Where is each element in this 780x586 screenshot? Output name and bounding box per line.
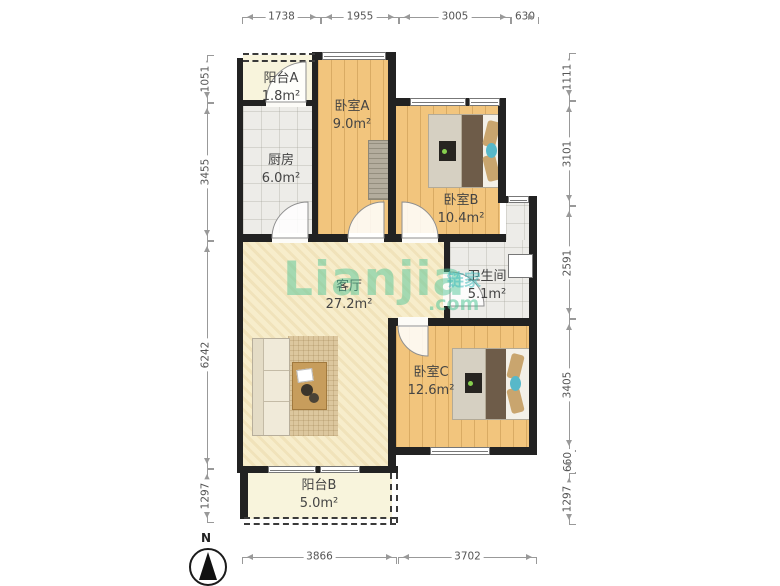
dimension-value: 3101 [563,137,575,170]
sofa-cushion-line [263,401,289,402]
floor-plan: 阳台A 1.8m² 厨房 6.0m² 卧室A 9.0m² 卧室B 10.4m² … [0,0,780,585]
dimension-top: 630 [511,17,539,24]
dimension-top: 1738 [242,17,321,24]
sofa-cushion-line [263,370,289,371]
dimension-right: 3101 [569,101,576,206]
dimension-value: 1297 [563,483,575,516]
room-name: 卧室A [333,98,372,116]
bed-b [428,114,505,188]
room-area: 5.0m² [300,495,339,513]
room-name: 阳台B [300,477,339,495]
balcony-b-dashed-edge [244,517,396,519]
dimension-right: 2591 [569,206,576,319]
dimension-value: 3702 [451,552,484,564]
bed-c-cushion [510,376,521,391]
bed-c-tv-light [468,381,473,386]
wall [529,196,537,455]
bathroom-floor-upper [506,202,530,242]
sofa [252,338,290,436]
bed-b-duvet [462,115,483,187]
bed-c [452,348,530,420]
window [508,196,529,203]
room-label-living-room: 客厅 27.2m² [326,278,373,313]
wall [312,52,318,242]
dimension-left: 1297 [207,469,214,523]
compass-icon [189,548,227,586]
window [320,466,360,473]
dimension-value: 3005 [439,12,472,24]
door-opening [443,272,451,306]
bed-c-duvet [486,349,506,419]
dimension-value: 1111 [563,61,575,94]
sofa-back [253,339,264,435]
dimension-value: 6242 [201,339,213,372]
table-card [296,368,314,383]
bed-b-tv-light [442,149,447,154]
wall [388,318,396,473]
window [469,98,500,106]
door-opening [272,233,308,243]
dimension-left: 6242 [207,241,214,469]
hallway-floor [390,240,446,320]
room-name: 厨房 [262,152,301,170]
dimension-right: 3405 [569,319,576,451]
compass-north-label: N [189,531,223,545]
washing-machine [508,254,533,278]
dimension-value: 630 [512,12,538,24]
room-label-bedroom-c: 卧室C 12.6m² [408,364,455,399]
door-opening [398,317,428,327]
room-area: 1.8m² [262,88,301,106]
room-area: 9.0m² [333,116,372,134]
room-name: 阳台A [262,70,301,88]
balcony-b-dashed-edge [390,473,392,523]
room-area: 5.1m² [467,286,506,304]
wall [498,98,506,203]
dimension-right: 1111 [569,53,576,101]
wall [237,466,398,473]
dimension-left: 1051 [207,55,214,103]
room-area: 12.6m² [408,382,455,400]
door-opening [402,233,438,243]
room-name: 卫生间 [467,268,506,286]
dimension-right: 1297 [569,473,576,525]
window [322,52,386,60]
dimension-bottom: 3866 [242,557,397,564]
dimension-top: 1955 [321,17,399,24]
room-label-bathroom: 卫生间 5.1m² [467,268,506,303]
coffee-table [292,362,327,410]
room-name: 客厅 [326,278,373,296]
window [410,98,466,106]
room-name: 卧室C [408,364,455,382]
dimension-value: 1738 [265,12,298,24]
room-label-bedroom-a: 卧室A 9.0m² [333,98,372,133]
balcony-b-dashed-edge [244,523,396,525]
dimension-value: 3455 [201,156,213,189]
table-bowl [309,393,319,403]
dimension-top: 3005 [399,17,511,24]
balcony-a-dashed-edge [243,60,315,62]
bed-b-cushion [486,143,497,158]
dimension-value: 2591 [563,246,575,279]
room-label-kitchen: 厨房 6.0m² [262,152,301,187]
balcony-a-dashed-edge [243,53,315,55]
wall [388,52,396,242]
dimension-right: 660 [569,451,576,473]
door-opening [348,233,384,243]
room-label-balcony-a: 阳台A 1.8m² [262,70,301,105]
dimension-value: 1955 [344,12,377,24]
dimension-left: 3455 [207,103,214,241]
room-name: 卧室B [438,192,485,210]
dimension-value: 1297 [201,480,213,513]
balcony-b-dashed-edge [396,473,398,523]
room-label-bedroom-b: 卧室B 10.4m² [438,192,485,227]
dimension-value: 3405 [563,369,575,402]
wall [237,58,243,473]
dimension-value: 3866 [303,552,336,564]
compass-needle-icon [199,552,217,580]
wall [240,473,248,519]
window [268,466,316,473]
dimension-bottom: 3702 [398,557,537,564]
room-area: 27.2m² [326,296,373,314]
window [430,447,490,455]
room-area: 6.0m² [262,170,301,188]
room-area: 10.4m² [438,210,485,228]
room-label-balcony-b: 阳台B 5.0m² [300,477,339,512]
dimension-value: 1051 [201,63,213,96]
dimension-value: 660 [563,449,575,475]
